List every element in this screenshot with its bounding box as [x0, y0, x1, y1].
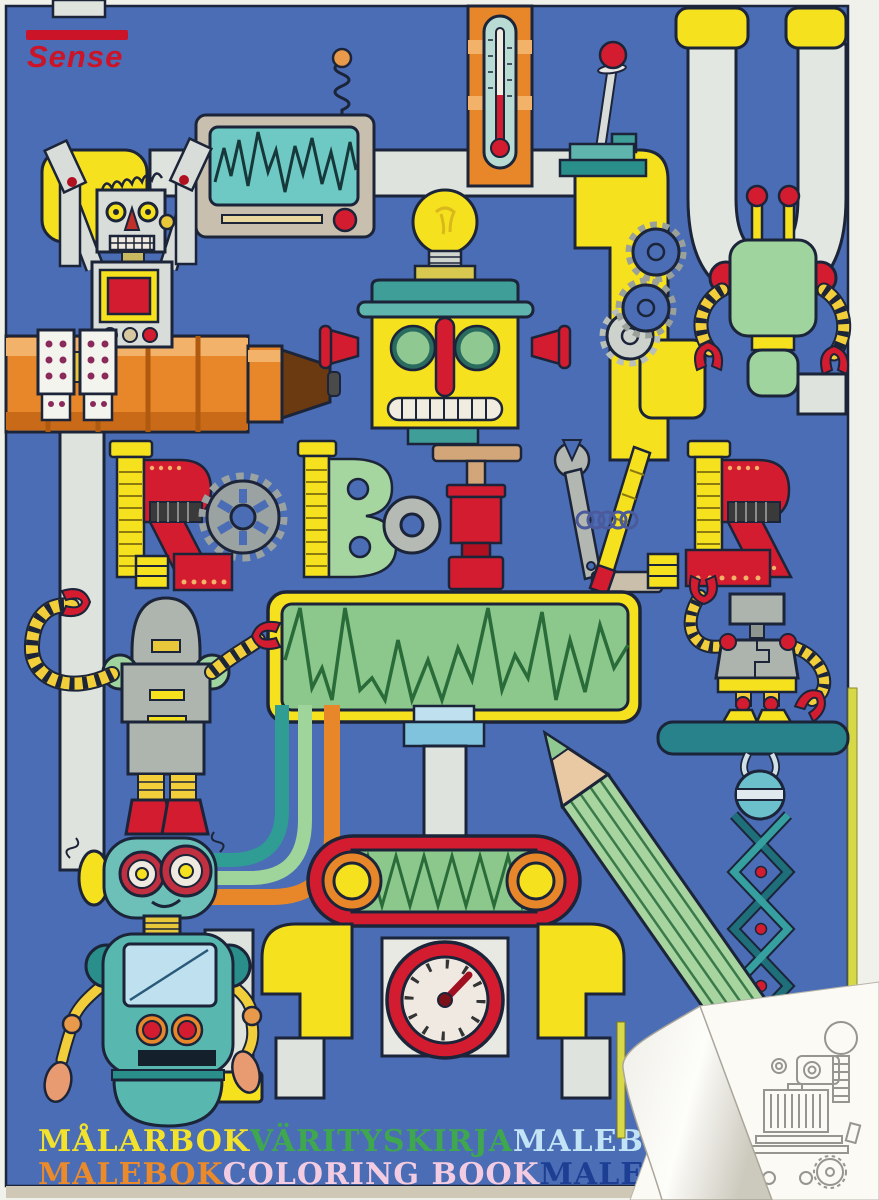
riveted-boxes-left [136, 554, 232, 590]
robot-foot [162, 800, 208, 834]
pipe-stub-top [53, 0, 105, 17]
title-letter-o-washer [384, 497, 440, 553]
robot-leg [38, 330, 74, 394]
horizontal-pipe-right [798, 374, 846, 414]
u-pipe-cap-right [786, 8, 846, 48]
sense-logo: Sense [26, 30, 128, 74]
antenna-ball [747, 186, 767, 206]
monitor-button [334, 209, 356, 231]
antenna-ball [333, 49, 351, 67]
footer-line1: MÅLARBOKVÄRITYSKIRJAMALEBOG [38, 1122, 698, 1159]
u-pipe-cap-left [676, 8, 748, 48]
robot-head [132, 598, 200, 664]
robot-eye [394, 329, 432, 367]
monitor-slot [222, 215, 322, 223]
robot-eye [179, 864, 193, 878]
word-varityskirja: VÄRITYSKIRJA [249, 1122, 513, 1159]
cover-illustration: MÅLARBOKVÄRITYSKIRJAMALEBOG MALEBOKCOLOR… [0, 0, 879, 1200]
vertical-pipe-left [60, 420, 104, 870]
roller-wheel [334, 863, 370, 899]
chest-button [143, 1021, 161, 1039]
chest-slot [138, 1050, 216, 1066]
chest-button [178, 1021, 196, 1039]
chest-screen [108, 278, 150, 314]
word-malarbok: MÅLARBOK [38, 1123, 250, 1159]
brand-name: Sense [27, 39, 123, 74]
robot-body [730, 240, 816, 336]
robot-head [730, 594, 784, 624]
thermometer-bulb [491, 139, 509, 157]
thermometer [468, 6, 532, 186]
lever-knob [600, 42, 626, 68]
word-malebok: MALEBOK [38, 1157, 223, 1192]
word-coloring-book: COLORING BOOK [223, 1157, 540, 1192]
roller-wheel [518, 863, 554, 899]
antenna-ball [779, 186, 799, 206]
robot-eye [458, 329, 496, 367]
thermometer-mercury [497, 95, 503, 140]
lift-platform [658, 722, 848, 754]
light-bulb-icon [413, 190, 477, 254]
waveform-display [268, 592, 640, 722]
robot-leg [80, 330, 116, 394]
robot-nose [436, 318, 454, 396]
robot-eye [136, 868, 148, 880]
book-cover-photo: MÅLARBOKVÄRITYSKIRJAMALEBOG MALEBOKCOLOR… [0, 0, 879, 1200]
